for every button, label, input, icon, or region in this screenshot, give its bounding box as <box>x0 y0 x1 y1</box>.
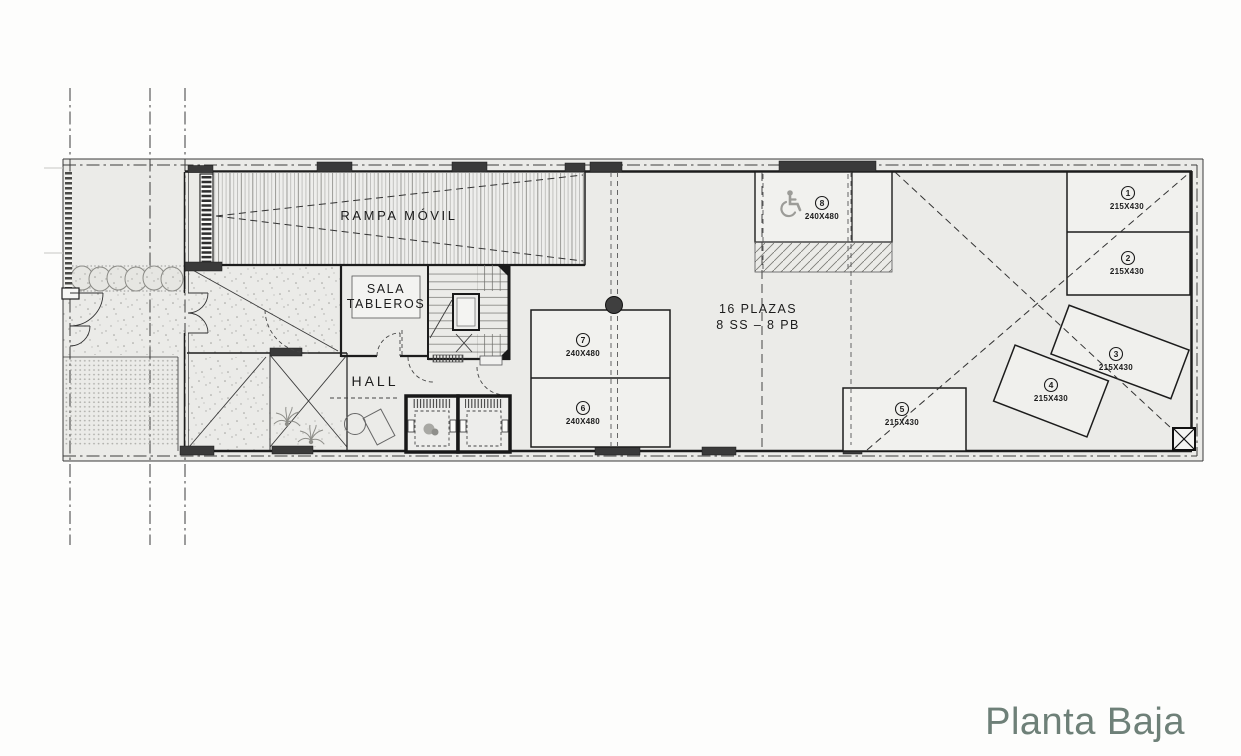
stair-threshold <box>433 355 463 362</box>
svg-text:215X430: 215X430 <box>1110 202 1144 211</box>
svg-text:240X480: 240X480 <box>566 417 600 426</box>
svg-text:7: 7 <box>581 335 586 345</box>
svg-text:215X430: 215X430 <box>1034 394 1068 403</box>
svg-text:240X480: 240X480 <box>566 349 600 358</box>
svg-text:8: 8 <box>820 198 825 208</box>
svg-text:3: 3 <box>1114 349 1119 359</box>
floor-plan-page: RAMPA MÓVIL SALA TABLEROS HALL <box>0 0 1241 756</box>
sala-label-line1: SALA <box>367 282 405 296</box>
stairwell <box>428 265 510 365</box>
x-box-marker <box>1173 428 1195 450</box>
ramp-label: RAMPA MÓVIL <box>340 208 457 223</box>
ramp: RAMPA MÓVIL <box>185 166 585 272</box>
sala-label-line2: TABLEROS <box>347 297 426 311</box>
round-column <box>606 297 623 314</box>
plazas-count: 16 PLAZAS <box>719 302 797 316</box>
svg-text:215X430: 215X430 <box>1110 267 1144 276</box>
hall-label: HALL <box>351 373 398 389</box>
svg-text:215X430: 215X430 <box>1099 363 1133 372</box>
accessible-aisle-hatch <box>755 242 892 272</box>
elevators <box>406 396 510 452</box>
garden-area <box>64 291 186 355</box>
floor-plan-drawing: RAMPA MÓVIL SALA TABLEROS HALL <box>0 0 1241 756</box>
svg-text:1: 1 <box>1126 188 1131 198</box>
plazas-split: 8 SS – 8 PB <box>716 318 800 332</box>
paved-area <box>64 357 179 447</box>
svg-text:5: 5 <box>900 404 905 414</box>
svg-text:2: 2 <box>1126 253 1131 263</box>
svg-text:215X430: 215X430 <box>885 418 919 427</box>
parking-spot-8-accessible <box>755 172 892 272</box>
svg-text:6: 6 <box>581 403 586 413</box>
pier <box>62 288 79 299</box>
svg-text:4: 4 <box>1049 380 1054 390</box>
svg-text:240X480: 240X480 <box>805 212 839 221</box>
plan-title: Planta Baja <box>985 701 1185 744</box>
